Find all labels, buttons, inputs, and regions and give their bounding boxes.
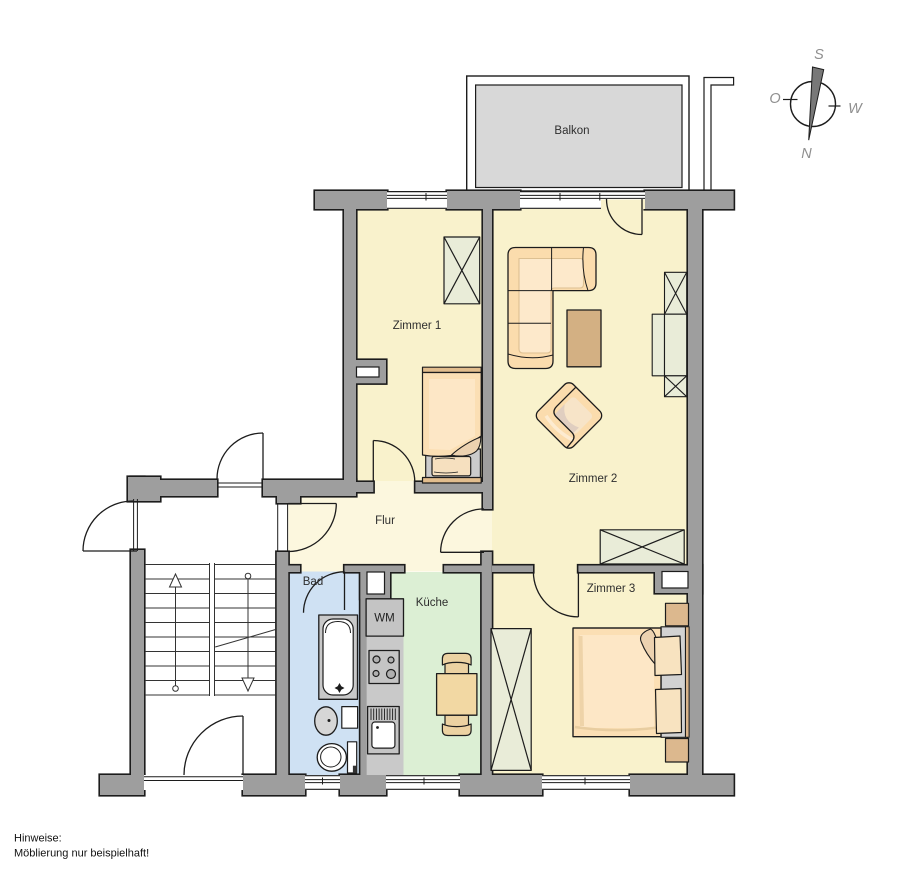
svg-text:Bad: Bad — [303, 576, 323, 588]
svg-text:W: W — [848, 101, 863, 117]
svg-text:Zimmer 2: Zimmer 2 — [569, 473, 618, 485]
svg-text:Balkon: Balkon — [554, 125, 589, 137]
svg-text:S: S — [814, 47, 824, 63]
svg-text:Zimmer 3: Zimmer 3 — [587, 583, 636, 595]
svg-text:O: O — [769, 91, 780, 107]
svg-text:WM: WM — [374, 613, 394, 625]
svg-text:Möblierung nur beispielhaft!: Möblierung nur beispielhaft! — [14, 848, 149, 860]
svg-text:Hinweise:: Hinweise: — [14, 833, 62, 845]
svg-text:Küche: Küche — [416, 597, 449, 609]
svg-text:Flur: Flur — [375, 515, 395, 527]
svg-text:N: N — [801, 146, 812, 162]
svg-text:Zimmer 1: Zimmer 1 — [393, 320, 442, 332]
